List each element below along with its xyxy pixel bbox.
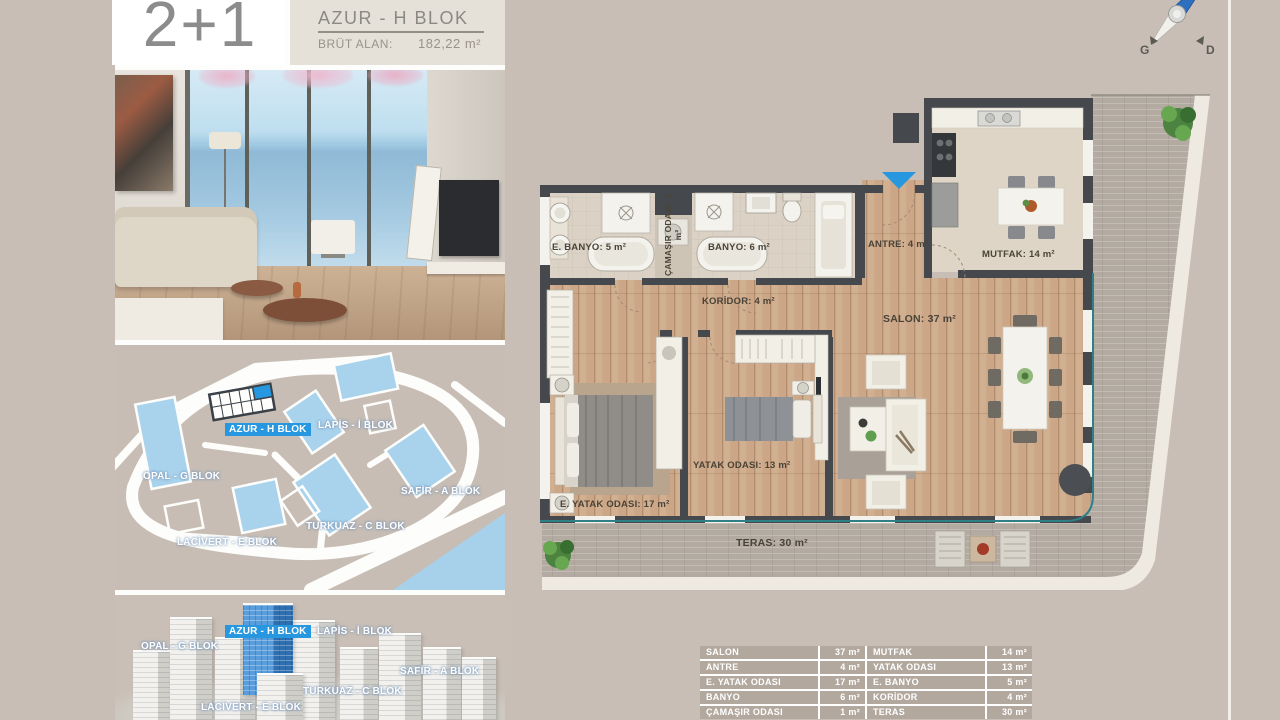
render-3d: AZUR - H BLOK LAPİS - İ BLOK OPAL - G BL… [115, 595, 505, 720]
room-label-yatak: YATAK ODASI: 13 m² [693, 460, 790, 471]
table-cell: 5 m² [987, 676, 1032, 689]
floor-lamp [209, 132, 241, 149]
coffee-table-small [231, 280, 283, 296]
table-cell: SALON [700, 646, 818, 659]
table-cell: 1 m² [820, 706, 865, 719]
room-label-mutfak: MUTFAK: 14 m² [982, 249, 1055, 260]
table-cell: YATAK ODASI [867, 661, 985, 674]
map-label-opal: OPAL - G BLOK [143, 471, 220, 482]
room-label-antre: ANTRE: 4 m² [868, 239, 928, 250]
room-label-banyo: BANYO: 6 m² [708, 242, 770, 253]
table-cell: MUTFAK [867, 646, 985, 659]
header-gap [285, 0, 290, 65]
render-label-turkuaz: TURKUAZ - C BLOK [303, 686, 402, 697]
table-cell: 37 m² [820, 646, 865, 659]
terrace-furniture [935, 531, 1030, 567]
room-label-teras: TERAS: 30 m² [736, 537, 808, 549]
map-label-safir: SAFİR - A BLOK [401, 486, 480, 497]
render-label-safir: SAFİR - A BLOK [400, 666, 479, 677]
table-cell: 14 m² [987, 646, 1032, 659]
sofa [115, 207, 257, 287]
round-side-table [1059, 464, 1091, 496]
compass-letter-g: G [1140, 43, 1149, 57]
brochure-page: { "colors": { "accent_blue": "#2797e0", … [0, 0, 1280, 720]
floor-plan: E. BANYO: 5 m² ÇAMAŞIR ODASI: 1 m² BANYO… [530, 85, 1245, 590]
tower [423, 647, 461, 720]
tv-shelf [427, 262, 505, 274]
coffee-table [263, 298, 347, 322]
table-cell: 4 m² [820, 661, 865, 674]
map-label-lapis: LAPİS - İ BLOK [318, 420, 393, 431]
table-cell: E. YATAK ODASI [700, 676, 818, 689]
floor-plan-svg [530, 85, 1245, 590]
table-cell: 4 m² [987, 691, 1032, 704]
room-label-e-banyo: E. BANYO: 5 m² [552, 242, 626, 253]
room-label-e-yatak: E. YATAK ODASI: 17 m² [560, 499, 669, 510]
gross-area-label: BRÜT ALAN: [318, 37, 393, 51]
interior-photo [115, 70, 505, 340]
site-map-graphic [115, 345, 505, 590]
vase [293, 282, 301, 298]
map-label-turkuaz: TURKUAZ - C BLOK [306, 521, 405, 532]
table-cell: E. BANYO [867, 676, 985, 689]
table-cell: TERAS [867, 706, 985, 719]
room-label-salon: SALON: 37 m² [883, 313, 956, 325]
render-label-azur: AZUR - H BLOK [225, 625, 311, 638]
master-bath-furniture [550, 193, 654, 271]
render-label-opal: OPAL - G BLOK [141, 641, 218, 652]
block-header-box: AZUR - H BLOK BRÜT ALAN: 182,22 m² [290, 0, 505, 65]
side-table [115, 298, 223, 340]
road-marking-line [1228, 0, 1231, 720]
tv-screen [439, 180, 499, 256]
table-cell: ANTRE [700, 661, 818, 674]
compass-letter-d: D [1206, 43, 1215, 57]
window-mullion [367, 70, 371, 275]
unit-type-box: 2+1 [112, 0, 288, 65]
room-label-camasir: ÇAMAŞIR ODASI: 1 m² [663, 191, 683, 279]
table-cell: 30 m² [987, 706, 1032, 719]
compass: G D [1130, 0, 1225, 62]
table-cell: ÇAMAŞIR ODASI [700, 706, 818, 719]
table-cell: KORİDOR [867, 691, 985, 704]
site-map: AZUR - H BLOK LAPİS - İ BLOK OPAL - G BL… [115, 345, 505, 590]
unit-type-label: 2+1 [112, 0, 288, 54]
table-cell: 6 m² [820, 691, 865, 704]
compass-graphic: G D [1130, 0, 1225, 62]
table-cell: 13 m² [987, 661, 1032, 674]
tower [133, 650, 173, 720]
gross-area-value: 182,22 m² [418, 36, 481, 51]
tower [340, 647, 378, 720]
lounge-chair [311, 220, 355, 254]
header-divider [318, 31, 484, 33]
table-cell: BANYO [700, 691, 818, 704]
map-label-azur: AZUR - H BLOK [225, 423, 311, 436]
table-cell: 17 m² [820, 676, 865, 689]
render-label-lacivert: LACİVERT - E BLOK [201, 702, 301, 713]
map-label-lacivert: LACİVERT - E BLOK [177, 537, 277, 548]
room-label-koridor: KORİDOR: 4 m² [702, 296, 775, 307]
area-table: SALON 37 m² MUTFAK 14 m² ANTRE 4 m² YATA… [700, 646, 1032, 719]
render-label-lapis: LAPİS - İ BLOK [317, 626, 392, 637]
wall-painting [115, 75, 173, 191]
block-title: AZUR - H BLOK [318, 8, 469, 29]
